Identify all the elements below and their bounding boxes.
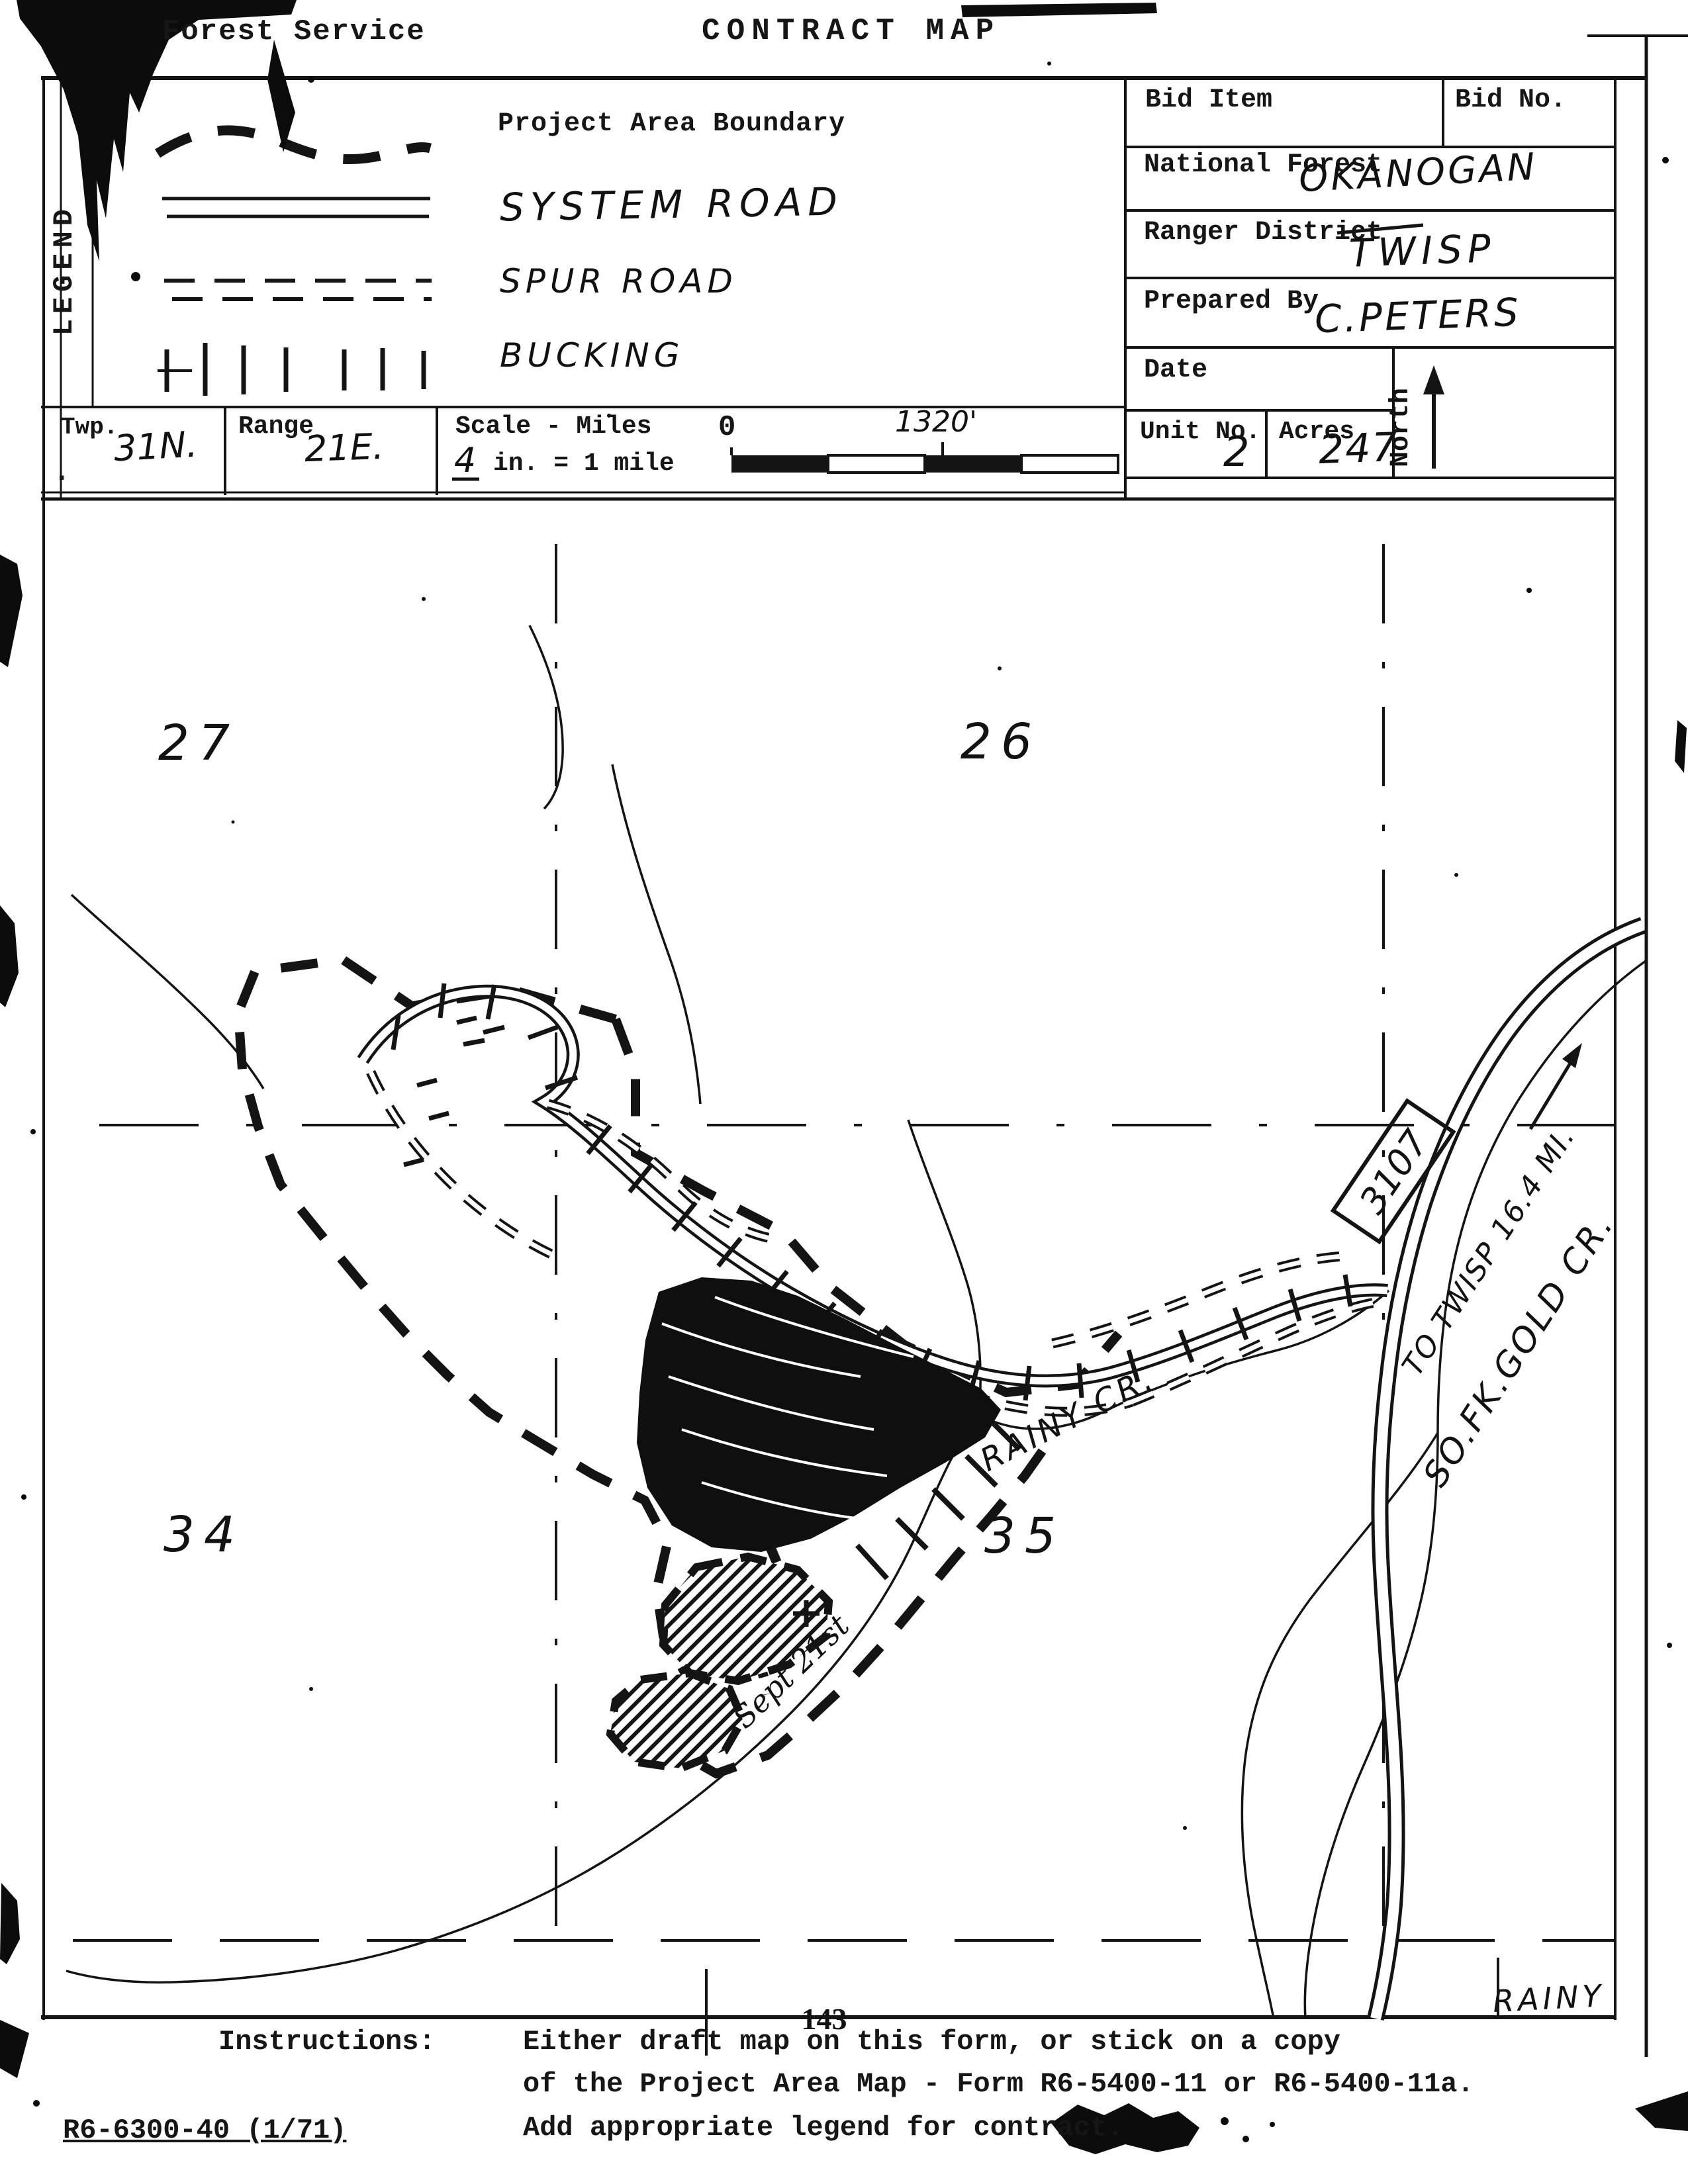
rainy-corner-label: RAINY — [1492, 1978, 1606, 2019]
legend-title: LEGEND — [50, 204, 78, 336]
cutting-unit-shaded-area — [610, 1277, 1019, 1768]
system-road — [363, 991, 1387, 1381]
date-label: Date — [1144, 357, 1207, 384]
instructions-line-1: Either draft map on this form, or stick … — [523, 2028, 1340, 2056]
contract-map-scan: North — [0, 0, 1688, 2184]
unit-no-value: 2 — [1223, 432, 1249, 473]
section-number-26: 26 — [961, 713, 1041, 770]
scale-label: Scale - Miles — [455, 414, 651, 439]
twp-value: 31N. — [113, 427, 199, 467]
legend-label-project-area-boundary: Project Area Boundary — [498, 111, 845, 138]
form-grid — [41, 34, 1688, 2057]
unit-lower-lobe-2 — [610, 1673, 743, 1768]
legend-symbols — [158, 130, 432, 396]
scale-distance: 1320' — [895, 408, 977, 437]
acres-value: 247 — [1318, 428, 1399, 470]
legend-bucking-ticks — [158, 343, 424, 396]
range-value: 21E. — [304, 429, 385, 467]
section-number-34: 34 — [164, 1506, 244, 1563]
prepared-by-label: Prepared By — [1144, 289, 1319, 315]
gold-creek-branch — [1242, 1433, 1438, 2019]
bid-item-label: Bid Item — [1145, 87, 1272, 114]
gold-creek-label: SO.FK.GOLD CR. — [1416, 1205, 1622, 1494]
creek-nw — [71, 895, 263, 1089]
range-label: Range — [238, 414, 314, 439]
map-drawing: 27 26 34 35 3107 TO TWISP 16.4 MI. SO.FK… — [66, 544, 1646, 2056]
legend-label-spur-road: SPUR ROAD — [500, 265, 737, 298]
section-number-35: 35 — [984, 1508, 1065, 1565]
bid-no-label: Bid No. — [1455, 87, 1566, 114]
legend-label-bucking: BUCKING — [500, 339, 684, 372]
legend-project-area-boundary-line — [158, 130, 430, 159]
north-arrowhead — [1423, 365, 1444, 394]
ranger-district-label: Ranger District — [1144, 220, 1382, 246]
ranger-district-value: TWISP — [1348, 229, 1497, 273]
scale-value-fraction: 4 — [454, 443, 476, 478]
instructions-label: Instructions: — [218, 2028, 436, 2056]
section-number-27: 27 — [158, 715, 239, 772]
legend-spur-road-line — [164, 281, 432, 299]
prepared-by-value: C.PETERS — [1314, 293, 1522, 339]
instructions-line-3: Add appropriate legend for contract. — [523, 2114, 1123, 2142]
scale-value-rest: in. = 1 mile — [493, 451, 675, 477]
creek-squiggle — [530, 625, 563, 809]
scale-bar — [731, 442, 1118, 473]
legend-label-system-road: SYSTEM ROAD — [500, 182, 844, 226]
legend-system-road-line — [162, 199, 430, 216]
gold-creek — [1305, 961, 1646, 2019]
form-number: R6-6300-40 (1/71) — [63, 2116, 346, 2144]
agency-title: Forest Service — [162, 17, 426, 46]
to-twisp-arrow — [1530, 1043, 1582, 1129]
twp-label: Twp. — [61, 416, 118, 439]
page-title: CONTRACT MAP — [702, 16, 1000, 46]
instructions-line-2: of the Project Area Map - Form R6-5400-1… — [523, 2070, 1474, 2098]
scale-zero: 0 — [718, 413, 735, 442]
twp-dot: . — [53, 458, 70, 487]
